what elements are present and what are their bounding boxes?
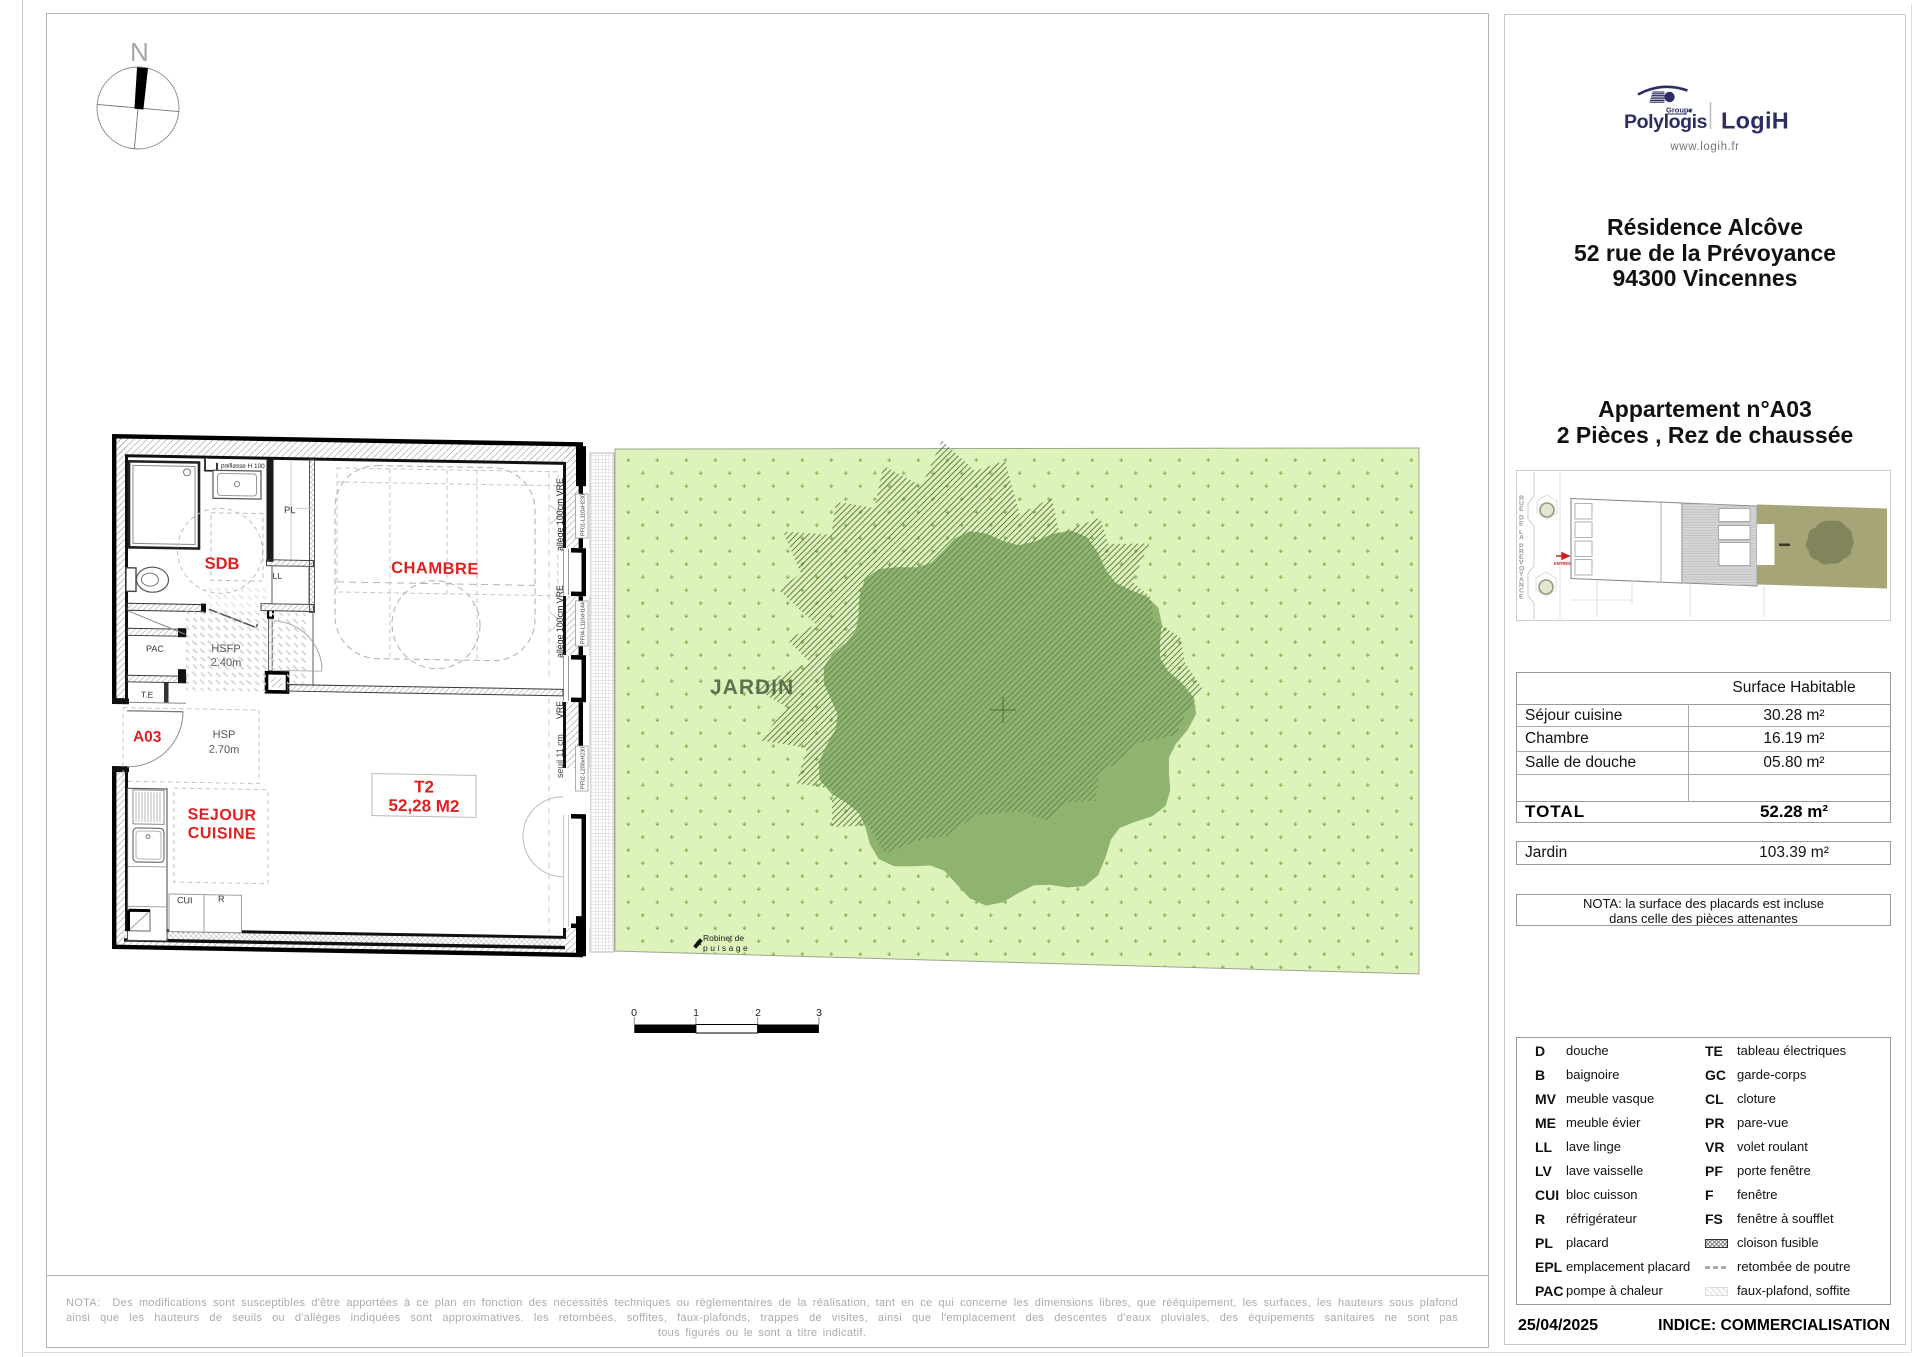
svg-text:JARDIN: JARDIN (710, 676, 794, 699)
svg-text:seuil 11 cm: seuil 11 cm (555, 734, 565, 778)
svg-text:SDB: SDB (205, 555, 240, 574)
svg-text:Robinet de: Robinet de (703, 933, 744, 943)
svg-text:1: 1 (693, 1007, 699, 1019)
svg-text:52,28 M2: 52,28 M2 (389, 796, 460, 816)
svg-text:2.70m: 2.70m (209, 744, 240, 757)
svg-text:0: 0 (631, 1007, 637, 1019)
svg-text:R: R (218, 894, 225, 904)
svg-text:2: 2 (755, 1007, 761, 1019)
svg-text:LogiH: LogiH (1721, 108, 1789, 134)
svg-text:3: 3 (816, 1007, 822, 1019)
svg-text:PF04-L110xH144: PF04-L110xH144 (581, 602, 587, 644)
svg-text:Polylogis: Polylogis (1624, 111, 1708, 133)
svg-text:PF02-L200xH230: PF02-L200xH230 (581, 747, 587, 789)
svg-text:paillasse H 100: paillasse H 100 (221, 462, 265, 470)
svg-text:A03: A03 (133, 728, 162, 746)
svg-text:N: N (130, 37, 149, 67)
svg-text:2.40m: 2.40m (211, 657, 242, 670)
svg-text:SEJOUR: SEJOUR (188, 806, 257, 824)
svg-text:allège 100cm VRE: allège 100cm VRE (555, 585, 565, 658)
svg-text:T.E: T.E (141, 690, 154, 700)
svg-text:allège 100cm VRE: allège 100cm VRE (555, 478, 565, 551)
svg-text:CUI: CUI (177, 895, 192, 905)
svg-text:PL: PL (284, 505, 296, 516)
svg-text:PF01-L110xH230: PF01-L110xH230 (581, 494, 587, 536)
svg-text:CUISINE: CUISINE (188, 825, 256, 843)
svg-text:PAC: PAC (146, 644, 164, 654)
svg-text:RUEDELAPREVOYANCE: RUEDELAPREVOYANCE (1519, 495, 1524, 600)
svg-text:VRE: VRE (555, 701, 565, 719)
svg-text:ENTRÉE: ENTRÉE (1554, 561, 1571, 566)
svg-text:CHAMBRE: CHAMBRE (391, 559, 479, 579)
svg-text:LL: LL (273, 571, 283, 581)
svg-text:HSFP: HSFP (211, 643, 240, 656)
svg-text:T2: T2 (414, 777, 434, 796)
svg-text:puisage: puisage (703, 943, 750, 953)
svg-text:HSP: HSP (213, 729, 236, 741)
